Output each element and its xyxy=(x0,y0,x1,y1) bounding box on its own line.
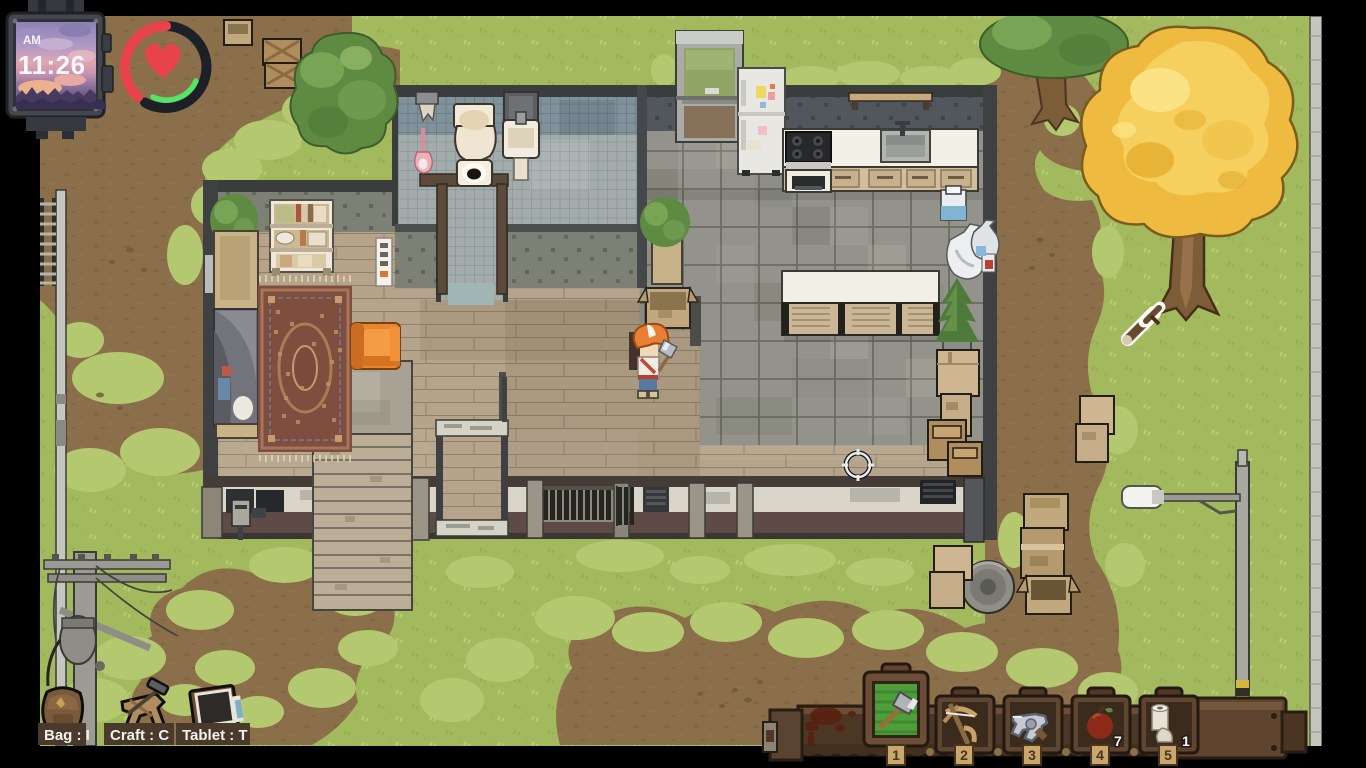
svg-text:3: 3 xyxy=(1028,747,1036,763)
svg-text:1: 1 xyxy=(1182,733,1190,749)
svg-text:1: 1 xyxy=(892,747,900,763)
svg-text:2: 2 xyxy=(960,747,968,763)
svg-text:Tablet : T: Tablet : T xyxy=(182,727,248,744)
svg-text:5: 5 xyxy=(1164,747,1172,763)
svg-text:4: 4 xyxy=(1096,747,1104,763)
svg-text:7: 7 xyxy=(1114,733,1122,749)
svg-text:11:26: 11:26 xyxy=(18,50,86,80)
svg-text:Bag : I: Bag : I xyxy=(44,727,90,744)
svg-text:Craft : C: Craft : C xyxy=(110,727,169,744)
svg-text:AM: AM xyxy=(23,35,41,47)
